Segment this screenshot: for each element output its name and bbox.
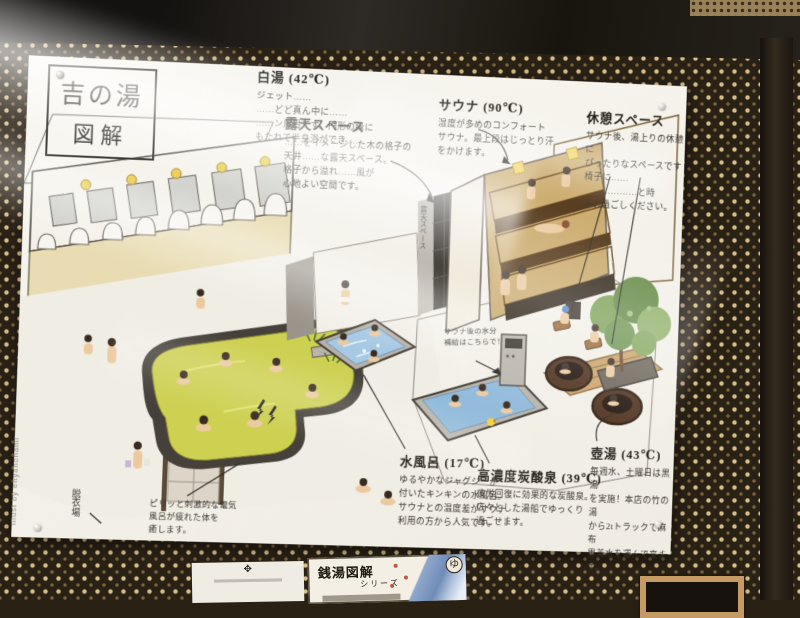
note-roten-wall: 露天スペース (417, 205, 429, 249)
sauna-body: 湿度が多めのコンフォート サウナ。最上段はじっとり汗 をかけます。 (437, 117, 591, 165)
poster-subtitle: 図解 (72, 116, 129, 150)
kyukei-heading: 休憩スペース (586, 107, 685, 130)
sento-map-poster: 吉の湯 図解 白湯 (42℃) ジェット…… ……どど真ん中に…… ……ン風呂で… (11, 55, 687, 554)
label-roten: 露天スペース ……をイメージした木の格子の 天井……な露天スペース。 格子から溢… (283, 113, 431, 197)
sauna-lamp (512, 161, 525, 174)
series-card-subtitle: シリーズ (360, 578, 400, 590)
ceiling-trim (690, 0, 800, 16)
note-datsuiba: 脱衣場 (68, 489, 82, 517)
kyukei-body: サウナ後、湯上りの休憩に ぴったりなスペースです 椅子に…… ……………と時 を… (583, 129, 684, 215)
note-water-refill: サウナ後の水分 補給はこちらで！ (444, 325, 521, 348)
crest-icon: ✥ (192, 563, 304, 576)
tsuboyu-body: 毎週水、土曜日は黒湯 を実施！本店の竹の湯 から2tトラックで麻布 黒美水を運ん… (586, 465, 675, 576)
wall-pillar (760, 38, 793, 600)
sento-zukai-series-card: 銭湯図解 シリーズ ゆ (307, 554, 466, 604)
note-denki: ピリッと刺激的な電気 風呂が疲れた体を 癒します。 (148, 497, 267, 538)
label-tsuboyu: 壺湯 (43℃) 毎週水、土曜日は黒湯 を実施！本店の竹の湯 から2tトラックで… (586, 443, 676, 576)
poster-title-box: 吉の湯 図解 (45, 64, 157, 160)
wooden-picture-frame (640, 576, 744, 618)
label-kyukei: 休憩スペース サウナ後、湯上りの休憩に ぴったりなスペースです 椅子に…… ……… (583, 107, 685, 215)
roten-body: ……をイメージした木の格子の 天井……な露天スペース。 格子から溢れ……風が 心… (283, 136, 430, 197)
tsuboyu-heading: 壺湯 (43℃) (591, 443, 677, 464)
small-notice-paper: ✥ (192, 561, 305, 603)
label-sauna: サウナ (90℃) 湿度が多めのコンフォート サウナ。最上段はじっとり汗 をかけ… (437, 94, 592, 164)
poster-title: 吉の湯 (60, 74, 145, 114)
